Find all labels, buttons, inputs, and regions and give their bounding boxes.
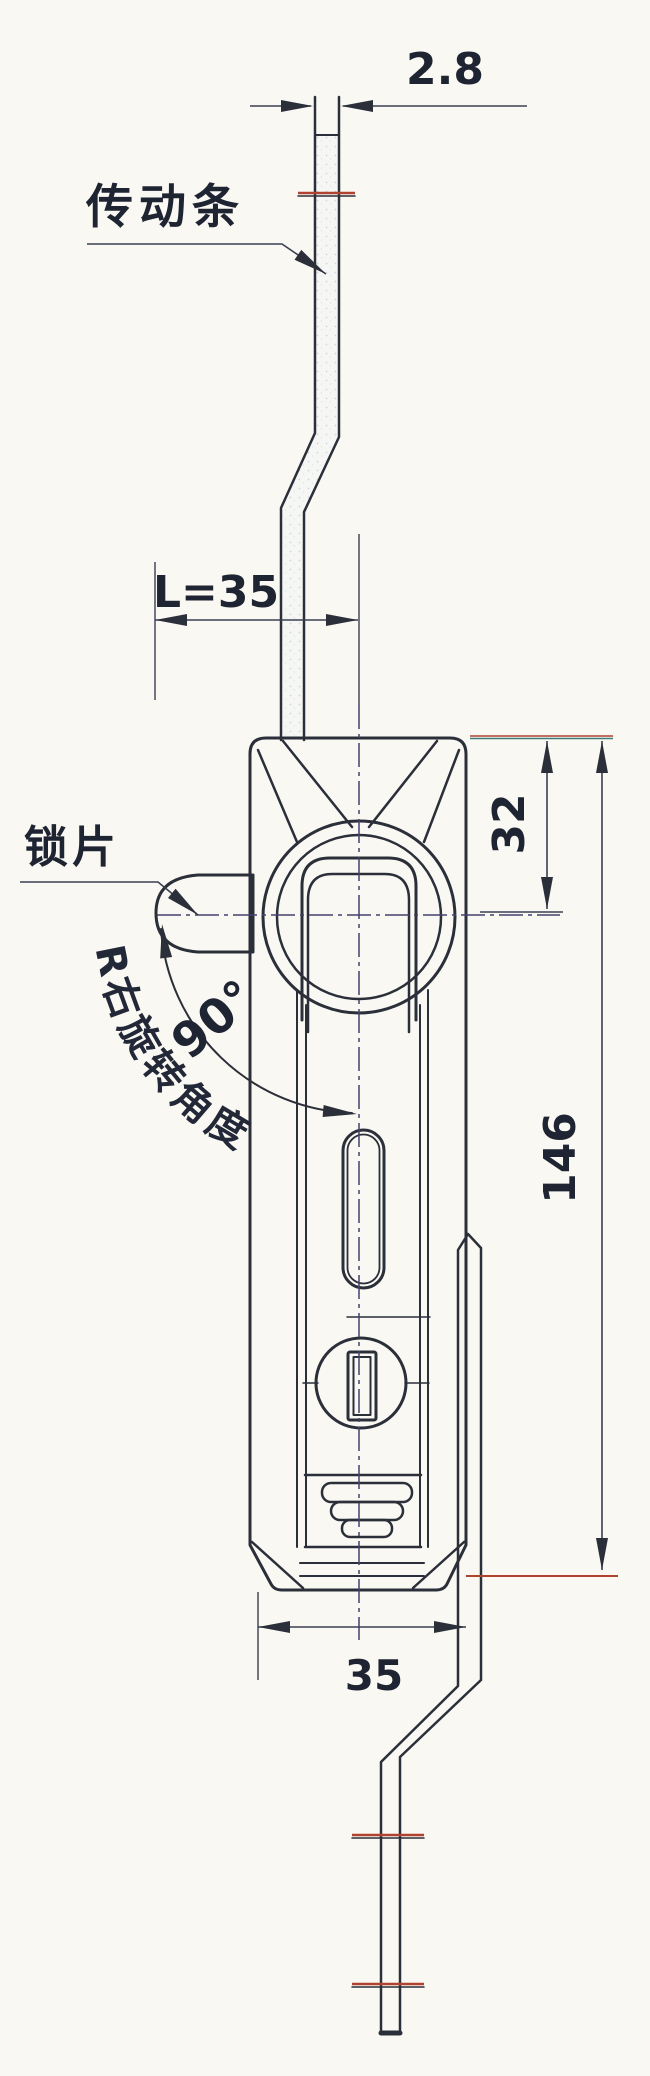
dim-body-width-value: 35 (345, 1651, 403, 1700)
label-lock-tongue: 锁片 (20, 822, 198, 915)
lock-body-outline (250, 738, 466, 1590)
dimension-head-height: 32 (470, 736, 613, 912)
drawing-page: 2.8 传动条 L=35 锁片 90° R右旋转角度 32 (0, 0, 650, 2076)
dim-tongue-length-value: L=35 (153, 567, 279, 618)
channel-walls (297, 990, 428, 1547)
lock-technical-drawing: 2.8 传动条 L=35 锁片 90° R右旋转角度 32 (0, 0, 650, 2076)
keyhole-slot (348, 1352, 376, 1420)
dim-head-height-value: 32 (484, 793, 535, 854)
dimension-tongue-length: L=35 (153, 562, 358, 700)
spring-steps (305, 1475, 421, 1537)
lock-body (250, 738, 466, 1590)
centerlines (157, 534, 560, 1640)
key-cylinder (303, 1338, 429, 1428)
rotation-arc: 90° R右旋转角度 (86, 923, 358, 1170)
label-transmission-bar: 传动条 (85, 180, 326, 274)
dim-body-length-value: 146 (535, 1112, 586, 1204)
label-lock-tongue-text: 锁片 (24, 822, 120, 873)
dimension-body-width: 35 (258, 1592, 466, 1700)
lock-tongue (156, 875, 253, 952)
label-transmission-bar-text: 传动条 (85, 180, 245, 235)
elongated-slot (343, 1130, 384, 1288)
dim-bar-thickness-value: 2.8 (406, 44, 484, 95)
bottom-band (252, 1542, 464, 1588)
dimension-bar-thickness: 2.8 (250, 44, 527, 112)
dimension-body-length: 146 (466, 741, 618, 1576)
